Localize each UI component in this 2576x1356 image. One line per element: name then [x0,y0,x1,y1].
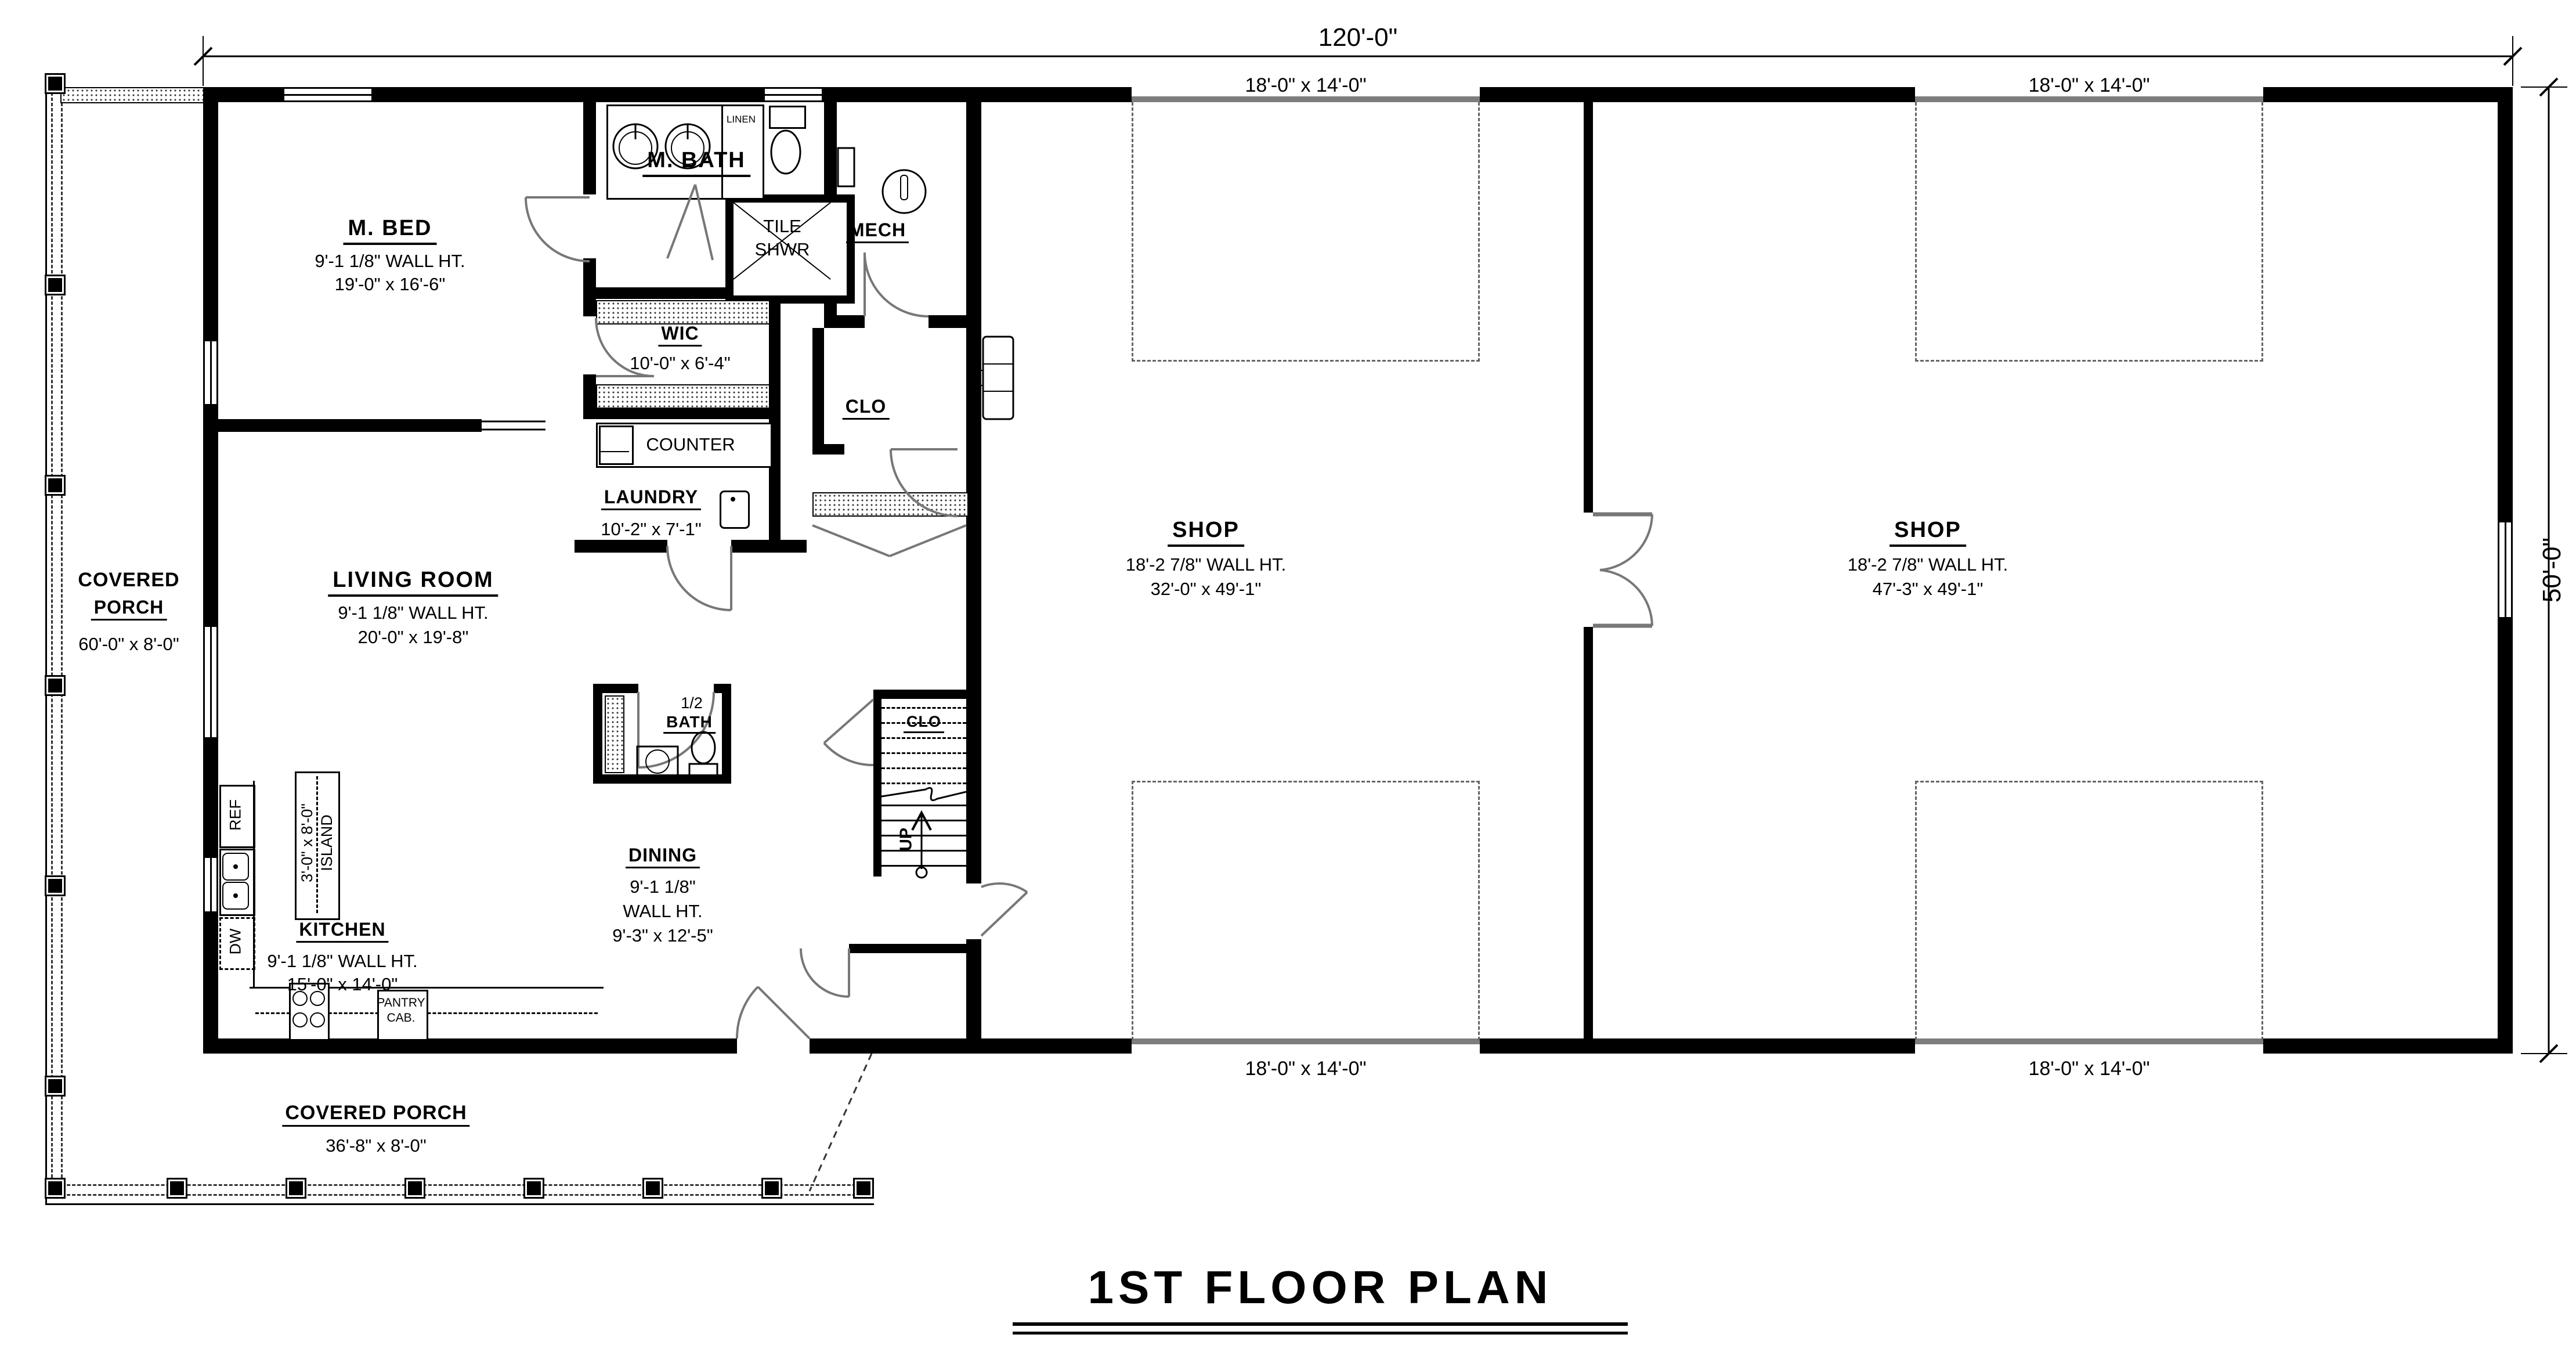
island-label: 3'-0" x 8'-0" ISLAND [297,803,337,882]
room-dining-size: 9'-3" x 12'-5" [612,925,713,946]
room-shop-right-wallht: 18'-2 7/8" WALL HT. [1848,554,2008,575]
room-dining-name: DINING [626,845,700,868]
room-shop-left-wallht: 18'-2 7/8" WALL HT. [1126,554,1287,575]
shower-label-2: SHWR [755,239,810,260]
room-living-wallht: 9'-1 1/8" WALL HT. [338,603,488,623]
island-name: ISLAND [318,814,335,871]
page-title: 1ST FLOOR PLAN [1088,1261,1553,1314]
room-kitchen-name: KITCHEN [296,919,388,943]
room-laundry-name: LAUNDRY [601,486,701,510]
halfbath-name: BATH [663,713,716,734]
room-living-size: 20'-0" x 19'-8" [358,627,469,648]
room-shop-left-size: 32'-0" x 49'-1" [1151,579,1262,600]
porch-left-size: 60'-0" x 8'-0" [78,634,179,655]
halfbath-line2: BATH [663,713,716,731]
room-mech: MECH [846,219,909,241]
room-shop-right-name: SHOP [1889,518,1966,547]
linen-label: LINEN [727,114,756,125]
room-kitchen-size: 15'-0" x 14'-0" [287,974,398,995]
porch-bottom-name-text: COVERED PORCH [282,1102,469,1127]
room-laundry-size: 10'-2" x 7'-1" [601,519,701,540]
floor-plan-canvas: 120'-0" 50'-0" 18'-0" x 14'-0" 18'-0" x … [0,0,2576,1356]
stairs-up-label: UP [897,828,916,851]
dw-label: DW [227,929,245,955]
room-living: LIVING ROOM [328,568,498,593]
garage-label-top-right: 18'-0" x 14'-0" [2028,74,2149,97]
porch-left-name2-text: PORCH [91,597,167,621]
room-shop-right-size: 47'-3" x 49'-1" [1873,579,1984,600]
room-mbed-name: M. BED [344,216,437,245]
shower-label-1: TILE [763,216,801,237]
room-dining-ht2: WALL HT. [623,901,702,922]
room-mbed: M. BED [344,216,437,241]
room-wic-name: WIC [658,323,702,347]
room-clo-hall: CLO [843,396,890,417]
room-mbed-size: 19'-0" x 16'-6" [335,274,446,295]
room-wic-size: 10'-0" x 6'-4" [630,353,730,374]
garage-label-top-left: 18'-0" x 14'-0" [1245,74,1366,97]
room-mbath: M. BATH [642,148,750,173]
porch-bottom-size: 36'-8" x 8'-0" [326,1135,426,1156]
title-underline-1 [1013,1322,1628,1326]
room-mbed-wallht: 9'-1 1/8" WALL HT. [315,251,465,272]
room-dining: DINING [626,845,700,866]
room-kitchen-wallht: 9'-1 1/8" WALL HT. [267,951,417,972]
room-mbath-name: M. BATH [642,148,750,177]
room-shop-left: SHOP [1168,518,1244,543]
dim-overall-width: 120'-0" [1318,23,1398,52]
halfbath-line1: 1/2 [681,694,703,712]
dim-overall-depth: 50'-0" [2538,538,2567,603]
porch-bottom-name: COVERED PORCH [282,1102,469,1124]
island-size: 3'-0" x 8'-0" [298,803,316,882]
room-dining-ht1: 9'-1 1/8" [630,877,695,897]
title-underline-2 [1013,1332,1628,1335]
pantry-label2: CAB. [386,1011,415,1025]
pantry-label1: PANTRY [377,996,425,1010]
room-shop-right: SHOP [1889,518,1966,543]
room-shop-left-name: SHOP [1168,518,1244,547]
room-living-name: LIVING ROOM [328,568,498,597]
room-clo-hall-name: CLO [843,396,890,420]
room-laundry: LAUNDRY [601,486,701,508]
porch-left-name2: PORCH [91,597,167,618]
room-wic: WIC [658,323,702,344]
room-clo-stairs: CLO [904,713,944,731]
counter-label: COUNTER [646,434,735,455]
room-kitchen: KITCHEN [296,919,388,940]
ref-label: REF [227,799,245,831]
room-clo-stairs-name: CLO [904,713,944,733]
room-mech-name: MECH [846,219,909,243]
garage-label-bottom-right: 18'-0" x 14'-0" [2028,1058,2149,1080]
garage-label-bottom-left: 18'-0" x 14'-0" [1245,1058,1366,1080]
porch-left-name1: COVERED [78,569,179,592]
